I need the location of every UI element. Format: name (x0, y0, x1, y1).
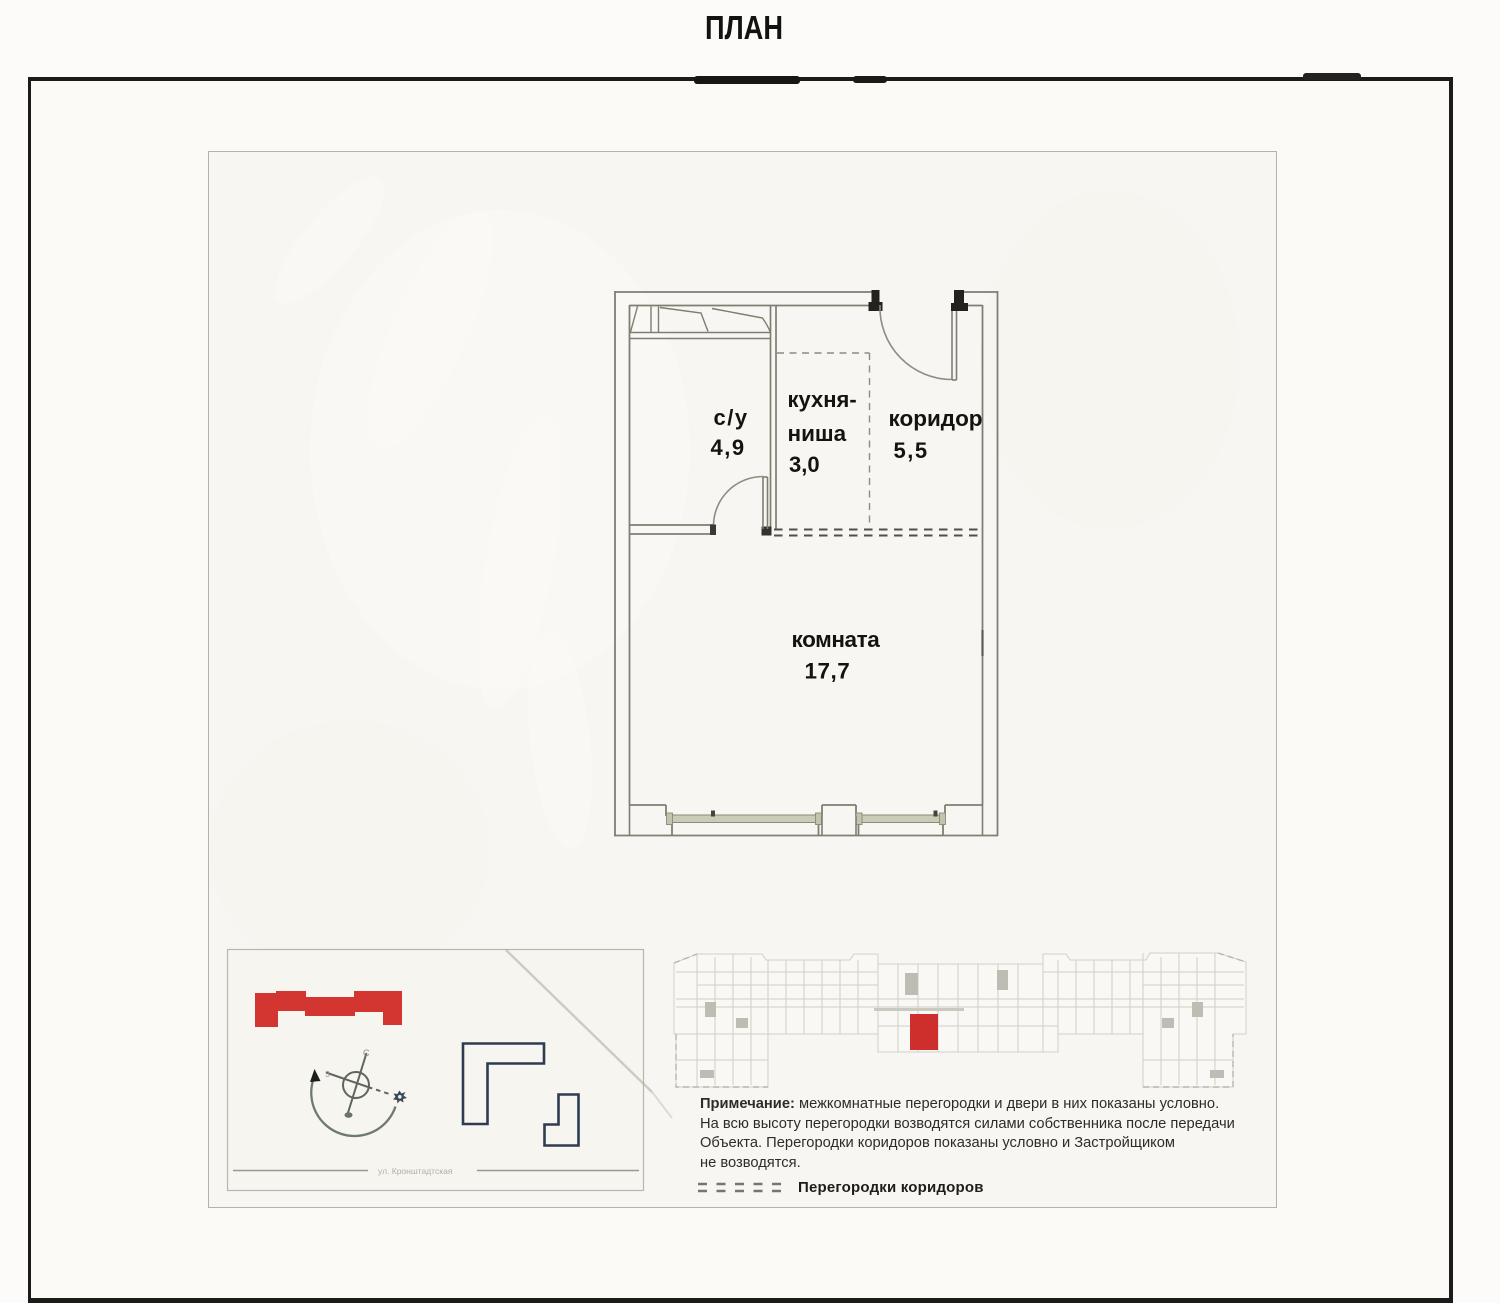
svg-text:комната: комната (792, 627, 881, 652)
svg-text:4,9: 4,9 (711, 435, 746, 460)
svg-text:5,5: 5,5 (894, 438, 929, 463)
svg-text:17,7: 17,7 (805, 659, 851, 684)
svg-text:С: С (363, 1048, 370, 1058)
svg-text:коридор: коридор (889, 406, 983, 431)
svg-text:ул. Кронштадтская: ул. Кронштадтская (378, 1166, 453, 1176)
svg-text:с/у: с/у (714, 405, 749, 430)
svg-text:ПЛАН: ПЛАН (705, 10, 783, 47)
svg-text:3,0: 3,0 (789, 452, 820, 477)
svg-text:З: З (325, 1070, 330, 1079)
svg-text:кухня-: кухня- (788, 387, 857, 412)
svg-text:ниша: ниша (788, 421, 847, 446)
